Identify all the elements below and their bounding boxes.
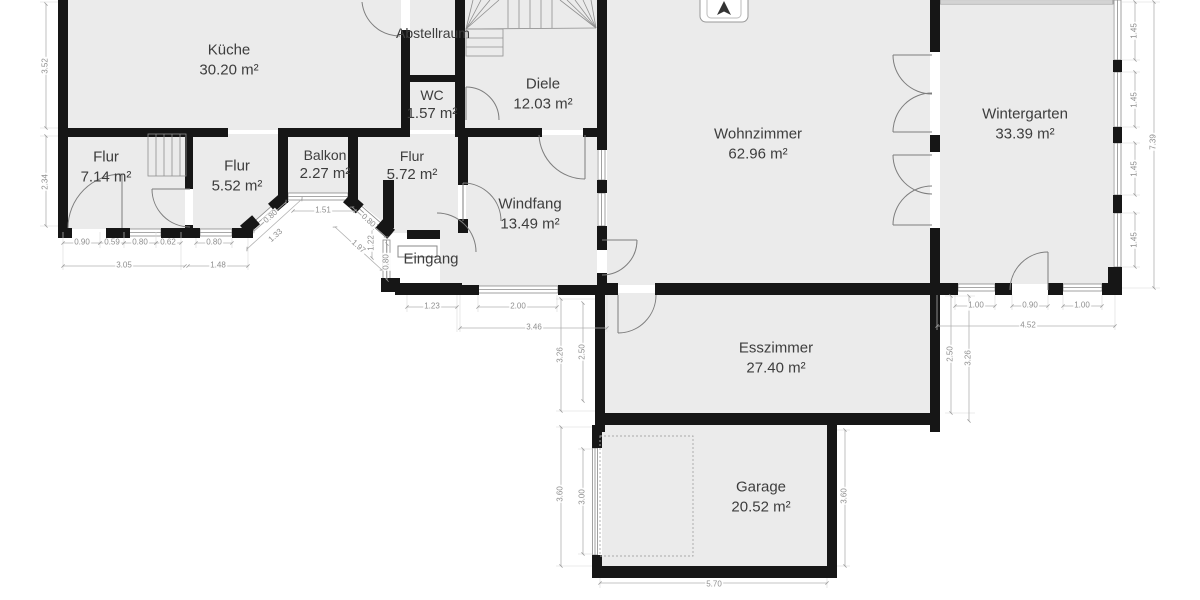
floor-plan-drawing bbox=[0, 0, 1200, 600]
dimension-label: 2.00 bbox=[509, 303, 527, 312]
window bbox=[940, 0, 1113, 4]
room-name: Abstellraum bbox=[396, 24, 470, 42]
dimension-label: 3.52 bbox=[42, 57, 51, 75]
dimension-label: 1.23 bbox=[423, 303, 441, 312]
room-name: Wintergarten bbox=[982, 105, 1068, 125]
window bbox=[1114, 143, 1121, 195]
room-label-wohnzimmer: Wohnzimmer62.96 m² bbox=[714, 125, 802, 164]
room-label-kueche: Küche30.20 m² bbox=[199, 41, 258, 80]
room-label-garage: Garage20.52 m² bbox=[731, 478, 790, 517]
window bbox=[958, 284, 995, 291]
dimension-label: 5.70 bbox=[705, 581, 723, 590]
room-area: 62.96 m² bbox=[714, 144, 802, 164]
room-area: 13.49 m² bbox=[498, 214, 561, 234]
dimension-label: 0.80 bbox=[205, 239, 223, 248]
room-name: WC bbox=[407, 86, 458, 104]
window bbox=[288, 193, 348, 200]
dimension-label: 3.26 bbox=[965, 349, 974, 367]
room-name: Flur bbox=[212, 157, 263, 177]
room-name: Küche bbox=[199, 41, 258, 61]
room-name: Flur bbox=[387, 147, 438, 165]
room-name: Diele bbox=[513, 75, 572, 95]
room-label-wintergarten: Wintergarten33.39 m² bbox=[982, 105, 1068, 144]
room-area: 33.39 m² bbox=[982, 124, 1068, 144]
room-label-balkon: Balkon2.27 m² bbox=[300, 146, 351, 184]
window bbox=[478, 286, 558, 293]
room-label-windfang: Windfang13.49 m² bbox=[498, 195, 561, 234]
dimension-label: 3.00 bbox=[579, 488, 588, 506]
room-label-flur-1: Flur7.14 m² bbox=[81, 148, 132, 187]
dimension-label: 7.39 bbox=[1150, 133, 1159, 151]
room-label-wc: WC1.57 m² bbox=[407, 86, 458, 124]
dimension-label: 2.50 bbox=[579, 343, 588, 361]
dimension-label: 3.26 bbox=[557, 346, 566, 364]
room-name: Flur bbox=[81, 148, 132, 168]
floor-plan: Küche30.20 m²AbstellraumWC1.57 m²Diele12… bbox=[0, 0, 1200, 600]
room-label-eingang: Eingang bbox=[403, 249, 458, 269]
dimension-label: 1.45 bbox=[1131, 160, 1140, 178]
dimension-label: 1.48 bbox=[209, 262, 227, 271]
dimension-label: 1.51 bbox=[314, 207, 332, 216]
dimension-label: 0.90 bbox=[1021, 302, 1039, 311]
dimension-label: 3.46 bbox=[525, 324, 543, 333]
dimension-label: 0.62 bbox=[159, 239, 177, 248]
window bbox=[593, 448, 598, 555]
dimension-label: 1.00 bbox=[1073, 302, 1091, 311]
room-label-flur-2: Flur5.52 m² bbox=[212, 157, 263, 196]
room-area: 1.57 m² bbox=[407, 104, 458, 124]
room-label-flur-3: Flur5.72 m² bbox=[387, 147, 438, 185]
room-name: Windfang bbox=[498, 195, 561, 215]
room-label-diele: Diele12.03 m² bbox=[513, 75, 572, 114]
dimension-label: 2.34 bbox=[42, 173, 51, 191]
room-area: 20.52 m² bbox=[731, 497, 790, 517]
window bbox=[200, 229, 232, 236]
room-name: Balkon bbox=[300, 146, 351, 164]
room-name: Wohnzimmer bbox=[714, 125, 802, 145]
window bbox=[1063, 284, 1102, 291]
room-name: Esszimmer bbox=[739, 339, 813, 359]
dimension-label: 4.52 bbox=[1019, 322, 1037, 331]
dimension-label: 0.59 bbox=[103, 239, 121, 248]
room-label-abstellraum: Abstellraum bbox=[396, 24, 470, 42]
room-area: 27.40 m² bbox=[739, 358, 813, 378]
dimension-label: 2.50 bbox=[947, 345, 956, 363]
window bbox=[1114, 213, 1121, 267]
window bbox=[1114, 0, 1121, 60]
room-area: 2.27 m² bbox=[300, 164, 351, 184]
room-area: 5.52 m² bbox=[212, 176, 263, 196]
dimension-label: 0.90 bbox=[73, 239, 91, 248]
room-area: 30.20 m² bbox=[199, 60, 258, 80]
room-name: Garage bbox=[731, 478, 790, 498]
dimension-label: 0.80 bbox=[131, 239, 149, 248]
dimension-label: 3.60 bbox=[841, 487, 850, 505]
room-label-esszimmer: Esszimmer27.40 m² bbox=[739, 339, 813, 378]
dimension-label: 1.22 bbox=[368, 234, 377, 252]
north-arrow-icon bbox=[700, 0, 748, 22]
dimension-label: 1.45 bbox=[1131, 231, 1140, 249]
dimension-label: 1.00 bbox=[967, 302, 985, 311]
window bbox=[598, 148, 605, 180]
room-area: 12.03 m² bbox=[513, 94, 572, 114]
room-name: Eingang bbox=[403, 249, 458, 269]
window bbox=[598, 193, 605, 226]
dimension-label: 1.45 bbox=[1131, 91, 1140, 109]
room-area: 5.72 m² bbox=[387, 165, 438, 185]
dimension-label: 3.60 bbox=[557, 485, 566, 503]
room-area: 7.14 m² bbox=[81, 167, 132, 187]
dimension-label: 1.45 bbox=[1131, 22, 1140, 40]
window bbox=[1114, 72, 1121, 127]
dimension-label: 0.80 bbox=[383, 253, 392, 271]
dimension-label: 3.05 bbox=[115, 262, 133, 271]
